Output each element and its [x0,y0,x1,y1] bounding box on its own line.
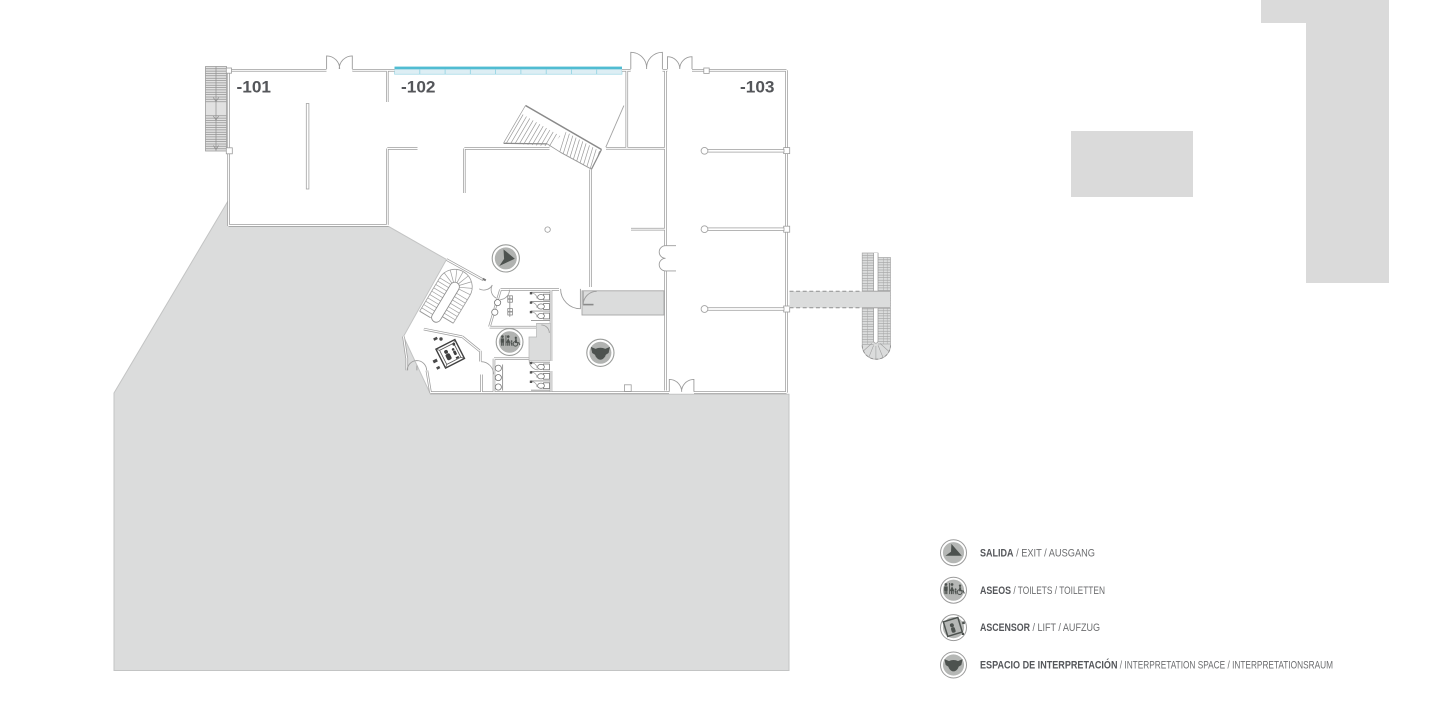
svg-text:ESPACIO DE INTERPRETACIÓN / IN: ESPACIO DE INTERPRETACIÓN / INTERPRETATI… [980,659,1333,672]
svg-text:-101: -101 [237,77,272,96]
svg-text:SALIDA / EXIT / AUSGANG: SALIDA / EXIT / AUSGANG [980,547,1095,559]
svg-text:-102: -102 [401,77,436,96]
svg-text:-103: -103 [740,77,775,96]
svg-text:ASCENSOR / LIFT / AUFZUG: ASCENSOR / LIFT / AUFZUG [980,622,1100,634]
svg-text:ASEOS / TOILETS / TOILETTEN: ASEOS / TOILETS / TOILETTEN [980,585,1105,597]
